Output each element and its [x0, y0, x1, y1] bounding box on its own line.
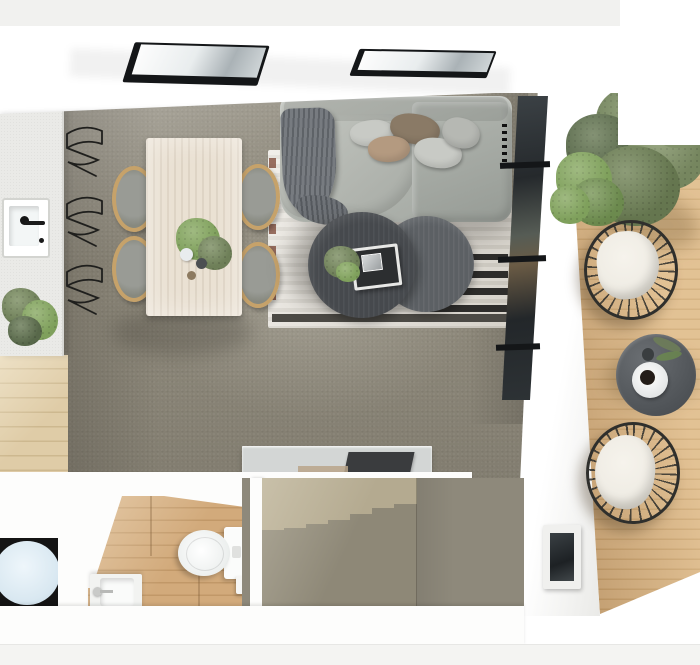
dining-chair: [236, 242, 280, 308]
dining-chair: [236, 164, 280, 230]
small-balcony-shrub: [550, 186, 590, 224]
kitchen-faucet-arm: [24, 221, 45, 225]
vase-white: [180, 248, 193, 261]
balcony-wicker-chair: [584, 220, 678, 320]
wall-band-bottom: [0, 606, 524, 646]
vase-small: [187, 271, 196, 280]
wall-vent-icon: [502, 124, 507, 162]
toilet-flush-button: [232, 546, 241, 558]
toilet-seat-seam: [186, 537, 224, 571]
bathroom-floor-seam: [150, 496, 152, 556]
stair-landing-shadow: [416, 478, 524, 608]
laundry-appliance: [0, 538, 58, 608]
vase-dark: [196, 258, 207, 269]
rug-end-band: [272, 314, 508, 322]
facade-window-glass: [550, 533, 574, 581]
exterior-bottom: [0, 644, 700, 665]
skylight: [122, 42, 269, 86]
stair-light-overlay: [262, 478, 416, 608]
wire-chair-stack: [64, 120, 108, 324]
floor-plan: [0, 0, 700, 665]
kitchen-faucet-knob: [39, 238, 44, 243]
coffee-table-plant: [336, 262, 360, 282]
kitchen-floor-light: [0, 355, 68, 472]
coffee-cup: [638, 368, 657, 387]
kitchen-sink-basin: [9, 206, 39, 246]
basin-faucet-arm: [100, 590, 113, 593]
washer-drum: [0, 541, 58, 605]
small-vase: [642, 348, 654, 361]
kitchen-plant: [8, 316, 42, 346]
balcony-wicker-chair: [586, 422, 680, 524]
stair-side-wall: [250, 478, 262, 608]
tray-picture: [361, 253, 383, 272]
chair-cushion: [594, 228, 663, 302]
exterior-top-band: [0, 0, 620, 26]
skylight: [349, 49, 496, 78]
chair-cushion: [590, 431, 660, 513]
